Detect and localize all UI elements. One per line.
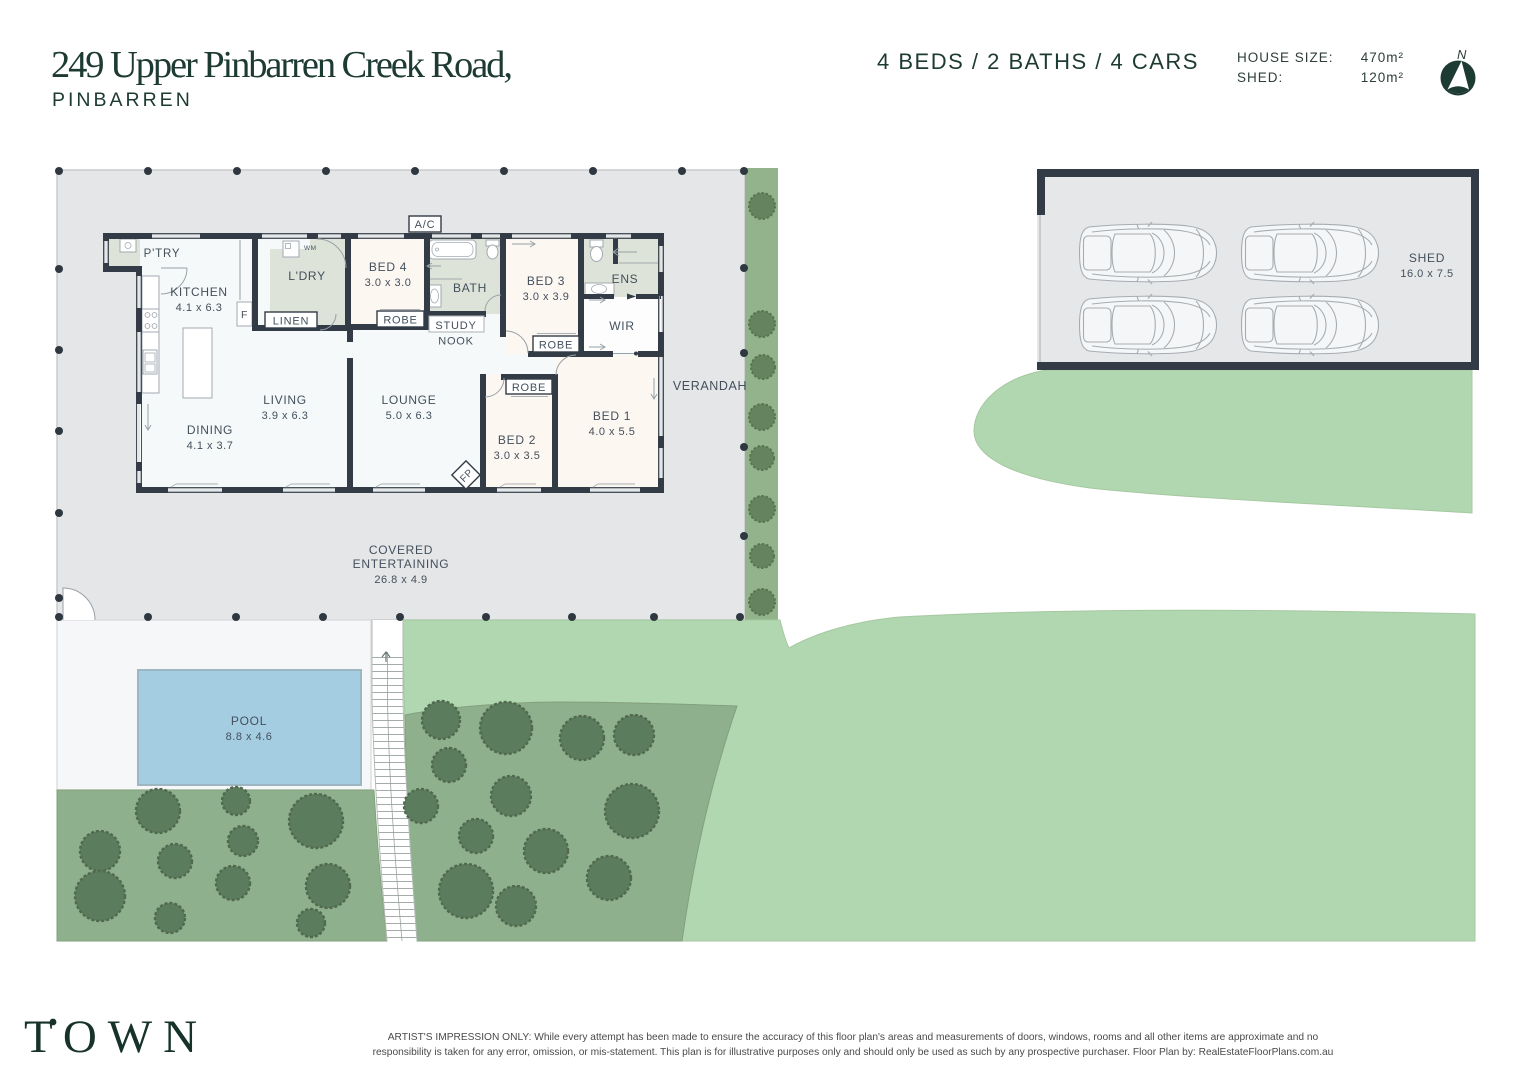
svg-text:WIR: WIR xyxy=(609,319,634,333)
svg-text:4 BEDS / 2 BATHS / 4 CARS: 4 BEDS / 2 BATHS / 4 CARS xyxy=(877,49,1199,74)
svg-text:PINBARREN: PINBARREN xyxy=(52,89,193,111)
svg-text:470m²: 470m² xyxy=(1361,50,1404,65)
svg-text:LOUNGE: LOUNGE xyxy=(382,393,437,407)
svg-text:ROBE: ROBE xyxy=(383,315,417,327)
svg-text:WM: WM xyxy=(304,245,317,252)
svg-text:VERANDAH: VERANDAH xyxy=(673,379,747,393)
svg-text:4.0 x 5.5: 4.0 x 5.5 xyxy=(589,426,636,438)
svg-text:STUDY: STUDY xyxy=(435,320,476,332)
svg-text:4.1 x 3.7: 4.1 x 3.7 xyxy=(187,440,234,452)
svg-text:A/C: A/C xyxy=(415,219,436,231)
svg-text:BED 2: BED 2 xyxy=(498,433,536,447)
svg-text:responsibility is taken for an: responsibility is taken for any error, o… xyxy=(373,1047,1334,1058)
svg-text:3.9 x 6.3: 3.9 x 6.3 xyxy=(262,410,309,422)
svg-text:120m²: 120m² xyxy=(1361,70,1404,85)
svg-text:F: F xyxy=(241,309,247,321)
svg-text:P'TRY: P'TRY xyxy=(144,248,181,260)
svg-text:NOOK: NOOK xyxy=(438,336,474,348)
svg-text:L'DRY: L'DRY xyxy=(288,269,326,283)
svg-text:16.0 x 7.5: 16.0 x 7.5 xyxy=(1400,268,1453,280)
svg-text:26.8 x 4.9: 26.8 x 4.9 xyxy=(374,574,427,586)
svg-text:LIVING: LIVING xyxy=(263,393,307,407)
svg-text:3.0 x 3.5: 3.0 x 3.5 xyxy=(494,450,541,462)
svg-text:BED 4: BED 4 xyxy=(369,260,407,274)
svg-text:BED 3: BED 3 xyxy=(527,274,565,288)
svg-text:HOUSE SIZE:: HOUSE SIZE: xyxy=(1237,50,1334,65)
svg-text:249 Upper Pinbarren Creek Road: 249 Upper Pinbarren Creek Road, xyxy=(51,44,511,86)
svg-text:3.0 x 3.0: 3.0 x 3.0 xyxy=(365,277,412,289)
svg-text:COVERED: COVERED xyxy=(369,543,433,557)
svg-text:BED 1: BED 1 xyxy=(593,409,631,423)
svg-text:TOWN: TOWN xyxy=(24,1011,208,1063)
svg-text:BATH: BATH xyxy=(453,281,487,295)
svg-text:ROBE: ROBE xyxy=(512,382,546,394)
svg-text:ARTIST'S IMPRESSION ONLY: Whil: ARTIST'S IMPRESSION ONLY: While every at… xyxy=(388,1032,1319,1043)
svg-text:ROBE: ROBE xyxy=(539,340,573,352)
svg-text:ENTERTAINING: ENTERTAINING xyxy=(353,557,450,571)
svg-text:SHED: SHED xyxy=(1409,251,1445,265)
svg-text:4.1 x 6.3: 4.1 x 6.3 xyxy=(176,302,223,314)
svg-text:ENS: ENS xyxy=(612,272,639,286)
svg-text:N: N xyxy=(1457,47,1467,62)
svg-text:5.0 x 6.3: 5.0 x 6.3 xyxy=(386,410,433,422)
svg-text:SHED:: SHED: xyxy=(1237,70,1283,85)
svg-text:DINING: DINING xyxy=(187,423,233,437)
svg-text:POOL: POOL xyxy=(231,714,267,728)
svg-text:8.8 x 4.6: 8.8 x 4.6 xyxy=(226,731,273,743)
svg-text:KITCHEN: KITCHEN xyxy=(170,285,228,299)
svg-text:LINEN: LINEN xyxy=(273,316,309,328)
svg-text:3.0 x 3.9: 3.0 x 3.9 xyxy=(523,291,570,303)
